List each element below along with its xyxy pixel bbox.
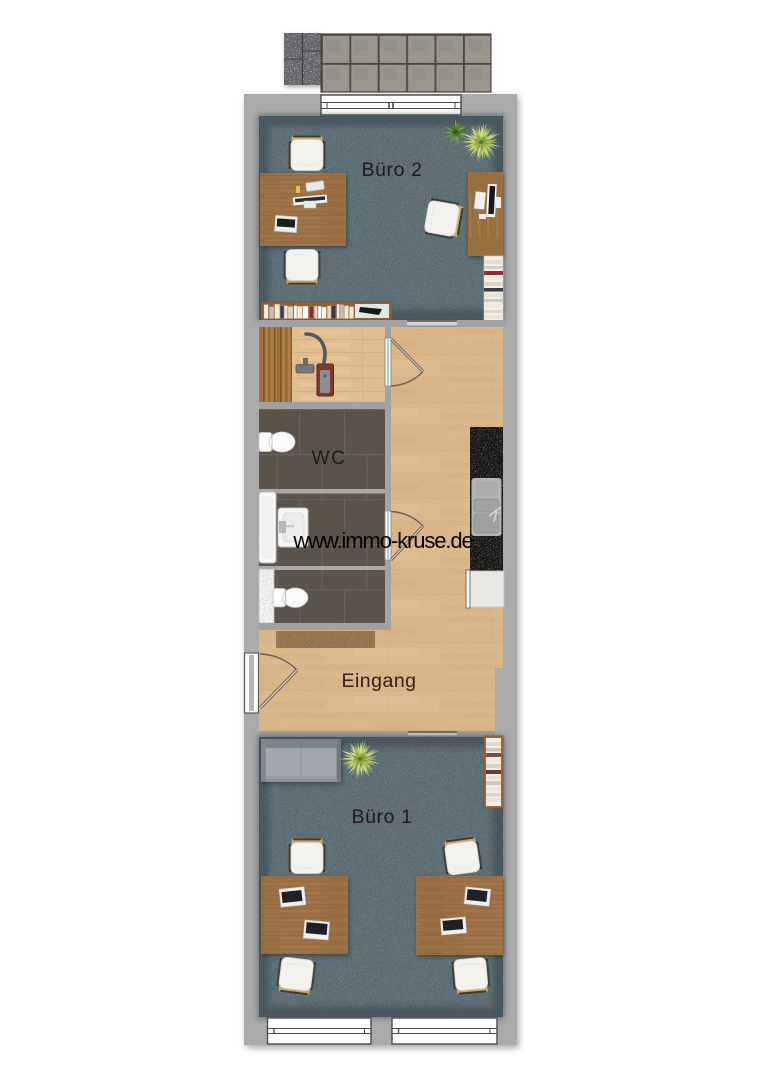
svg-text:Eingang: Eingang bbox=[341, 670, 416, 692]
svg-text:Büro 2: Büro 2 bbox=[361, 159, 422, 181]
svg-text:www.immo-kruse.de: www.immo-kruse.de bbox=[292, 528, 473, 553]
svg-text:Büro 1: Büro 1 bbox=[351, 806, 412, 828]
svg-text:WC: WC bbox=[312, 448, 347, 469]
